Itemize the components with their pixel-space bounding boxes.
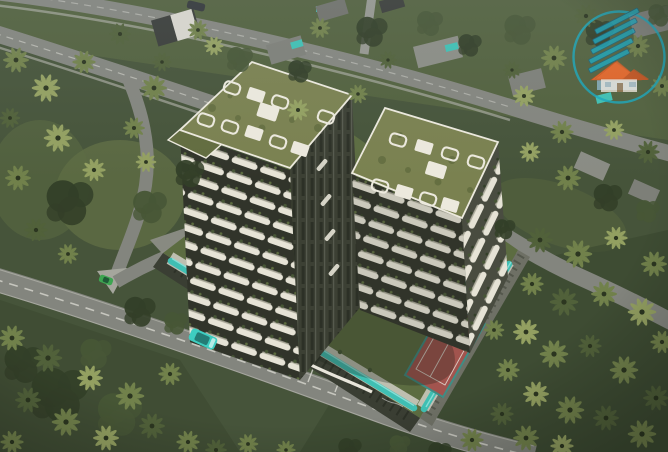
aerial-render <box>0 0 668 452</box>
vignette <box>0 0 668 452</box>
scene-canvas <box>0 0 668 452</box>
